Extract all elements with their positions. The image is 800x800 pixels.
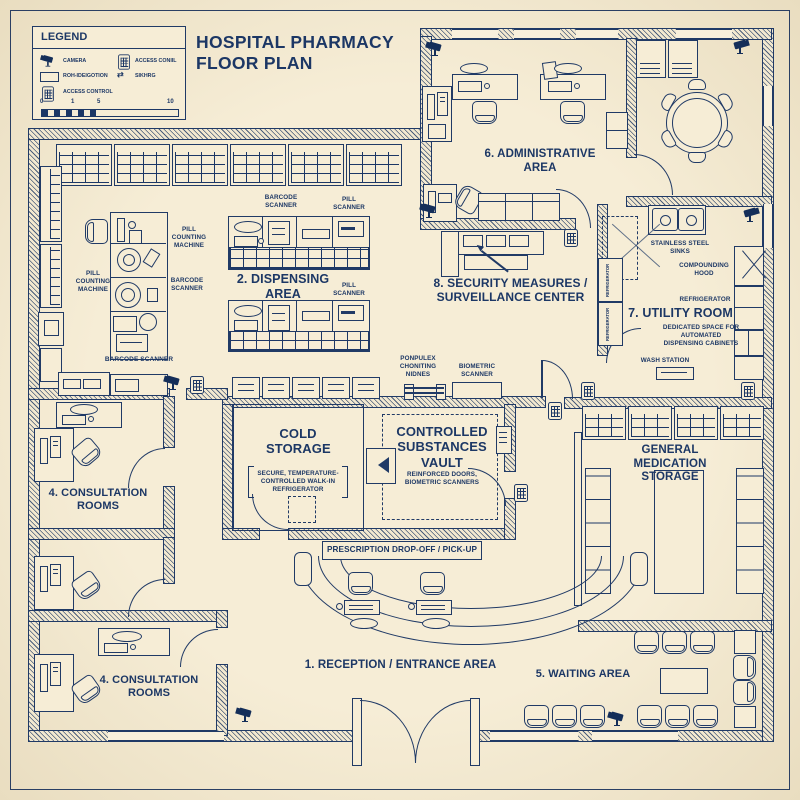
monitor [554, 63, 582, 74]
vault-door-icon [378, 457, 389, 473]
keyboard [62, 415, 86, 425]
chair [693, 705, 718, 728]
side-table [734, 630, 756, 654]
label-wash-station: WASH STATION [636, 357, 694, 365]
scale-device [234, 221, 262, 233]
refrigerator-cabinet: REFRIGERATOR [598, 258, 623, 302]
keyboard [234, 236, 258, 247]
shelf-unit [288, 144, 344, 186]
label-compounding-hood: COMPOUNDING HOOD [674, 262, 734, 278]
label-sinks: STAINLESS STEEL SINKS [644, 240, 716, 256]
window [763, 204, 773, 248]
prescription-counter-box: PRESCRIPTION DROP-OFF / PICK-UP [322, 541, 482, 560]
label-refrigerator: REFRIGERATOR [674, 296, 736, 304]
scanner-bin [262, 377, 290, 399]
scale-tick: 0 [40, 99, 43, 105]
computer-tower [437, 92, 448, 116]
cabinet [668, 40, 698, 78]
counting-machine-bar [404, 387, 444, 389]
label-vault-desc: REINFORCED DOORS, BIOMETRIC SCANNERS [394, 471, 490, 487]
window [592, 731, 678, 741]
window [452, 29, 498, 39]
desk-wing [294, 552, 312, 586]
scale-bar [41, 109, 179, 117]
register [344, 600, 380, 615]
shelf-unit [230, 144, 286, 186]
keyboard [458, 81, 482, 92]
device [422, 618, 450, 629]
wall [163, 396, 175, 448]
camera-icon [608, 712, 625, 726]
scale-tick: 10 [167, 99, 174, 105]
device [116, 334, 148, 352]
monitor [427, 94, 435, 120]
mouse [574, 83, 580, 89]
mouse [128, 221, 136, 229]
scanner-bin [322, 377, 350, 399]
chair [662, 631, 687, 654]
monitor [40, 664, 48, 692]
legend-title: LEGEND [41, 31, 101, 44]
scanner-bin [232, 377, 260, 399]
keyboard [548, 81, 572, 92]
camera-icon [236, 708, 253, 722]
monitor [117, 218, 125, 242]
monitor [460, 63, 488, 74]
wall-cabinet [38, 312, 64, 346]
keypad-icon [514, 484, 528, 502]
barcode-scanner-device [268, 305, 290, 331]
title-line2: FLOOR PLAN [196, 53, 426, 74]
shelving-arrows-icon: ⇄ [117, 70, 124, 79]
camera-icon [742, 208, 759, 222]
window [576, 29, 618, 39]
storage-rack [736, 468, 764, 594]
pill-counting-machine [121, 288, 135, 302]
keypad-icon [741, 382, 755, 400]
label-reception: 1. RECEPTION / ENTRANCE AREA [298, 659, 503, 673]
wall-cabinet [40, 244, 62, 308]
wall [28, 128, 434, 140]
keypad-icon [548, 402, 562, 420]
chair [472, 101, 497, 124]
label-barcode-scanner: BARCODE SCANNER [163, 277, 211, 293]
door-leaf [541, 360, 543, 398]
camera-icon [164, 376, 181, 390]
mouse [484, 83, 490, 89]
chair [420, 572, 445, 595]
label-cold-storage: COLD STORAGE [266, 426, 330, 457]
computer-tower [50, 436, 61, 458]
tray [302, 229, 330, 239]
coffee-table [660, 668, 708, 694]
shelf-unit [628, 406, 672, 440]
security-shelf [478, 193, 560, 221]
barcode-counter [110, 374, 168, 396]
biometric-panel [496, 426, 512, 454]
label-pill-counting: PILL COUNTING MACHINE [166, 226, 212, 251]
label-pill-counting: PILL COUNTING MACHINE [70, 270, 116, 295]
dot [408, 603, 415, 610]
computer-tower [50, 564, 61, 586]
chair [524, 705, 549, 728]
camera-icon [732, 40, 749, 54]
label-administrative: 6. ADMINISTRATIVE AREA [482, 148, 598, 175]
keyboard [104, 643, 128, 653]
desk-wing [630, 552, 648, 586]
register [416, 600, 452, 615]
divider [110, 311, 166, 312]
legend-item-label: ACCESS CONTROL [63, 89, 113, 95]
camera-icon [420, 204, 437, 218]
device [147, 288, 158, 302]
shelf-unit [346, 144, 402, 186]
shelf-unit [172, 144, 228, 186]
cabinet [606, 112, 628, 131]
legend: LEGEND CAMERA ACCESS CONIIL ROH-IDEIGOTI… [32, 26, 186, 120]
monitor [40, 438, 48, 464]
monitor [486, 235, 506, 247]
chair [634, 631, 659, 654]
pill-counting-machine [123, 254, 135, 266]
wall [762, 28, 774, 742]
label-consultation-lower: 4. CONSULTATION ROOMS [94, 674, 204, 700]
chair [580, 705, 605, 728]
label-dedicated-space: DEDICATED SPACE FOR AUTOMATED DISPENSING… [660, 324, 742, 349]
round-table [672, 98, 722, 148]
mouse [130, 644, 136, 650]
tray [302, 311, 330, 321]
device [139, 313, 157, 331]
barcode-counter [58, 372, 110, 396]
device [113, 316, 137, 332]
storage-rack [654, 470, 704, 594]
chair [690, 631, 715, 654]
keypad-icon [190, 376, 204, 394]
chair [637, 705, 662, 728]
scale-device [234, 305, 262, 317]
label-pill-scanner: PILL SCANNER [326, 196, 372, 212]
chair [688, 79, 706, 90]
window-icon [40, 72, 59, 82]
chair [733, 680, 756, 705]
camera-icon [41, 55, 55, 66]
cabinet [636, 40, 666, 78]
biometric-scanner-counter [452, 382, 502, 399]
wall [163, 537, 175, 584]
shelf-unit [56, 144, 112, 186]
window [490, 731, 578, 741]
divider [33, 48, 185, 49]
device [129, 230, 142, 244]
scanner-bin [352, 377, 380, 399]
label-waiting: 5. WAITING AREA [524, 668, 642, 681]
chair [348, 572, 373, 595]
chair [85, 219, 108, 244]
shelf-unit [114, 144, 170, 186]
wall [216, 664, 228, 736]
monitor [509, 235, 529, 247]
divider [110, 277, 166, 278]
label-pill-scanner: PILL SCANNER [326, 282, 372, 298]
chair [665, 705, 690, 728]
sink [678, 208, 704, 231]
keypad-icon [581, 382, 595, 400]
chair [688, 152, 706, 163]
window [108, 731, 224, 741]
refrigerator-cabinet: REFRIGERATOR [598, 302, 623, 346]
monitor [40, 566, 48, 592]
label-general-storage: GENERAL MEDICATION STORAGE [605, 444, 735, 485]
entrance-door [470, 698, 480, 766]
page-title: HOSPITAL PHARMACY FLOOR PLAN [196, 32, 426, 74]
dot [336, 603, 343, 610]
label-vault: CONTROLLED SUBSTANCES VAULT [392, 424, 492, 470]
counting-machine-bar [404, 392, 444, 394]
wall [216, 610, 228, 628]
mouse [88, 416, 94, 422]
wall [28, 528, 175, 540]
shelf-unit [720, 406, 764, 440]
wall-cabinet [40, 166, 62, 242]
barcode-scanner-device [268, 221, 290, 245]
chair [560, 101, 585, 124]
security-cabinet [441, 231, 459, 277]
label-consultation-upper: 4. CONSULTATION ROOMS [46, 487, 150, 513]
monitor [70, 404, 98, 415]
label-barcode-scanner: BARCODE SCANNER [100, 356, 178, 364]
dashed-zone [288, 496, 316, 523]
wash-station [656, 367, 694, 380]
legend-item-label: SIKHRG [135, 73, 156, 79]
scanner-bin [292, 377, 320, 399]
mouse [258, 238, 264, 244]
bin-row [229, 331, 369, 351]
label-security: 8. SECURITY MEASURES / SURVEILLANCE CENT… [428, 276, 593, 304]
monitor [112, 631, 142, 642]
keyboard [234, 320, 258, 331]
pill-scanner-device [338, 305, 364, 321]
label-counting-machines: PONPULEX CHONITING NIDNES [392, 355, 444, 380]
bin-row [229, 247, 369, 269]
computer-tower [50, 662, 61, 686]
shelf-unit [674, 406, 718, 440]
device [350, 618, 378, 629]
chair [552, 705, 577, 728]
cabinet [734, 356, 764, 380]
device [428, 124, 446, 139]
legend-item-label: ROH-IDEIGOTION [63, 73, 108, 79]
camera-icon [426, 42, 443, 56]
pill-scanner-device [338, 221, 364, 237]
label-barcode-scanner: BARCODE SCANNER [252, 194, 310, 210]
window [676, 29, 732, 39]
label-utility: 7. UTILITY ROOM [628, 306, 733, 321]
window [763, 86, 773, 126]
side-table [734, 706, 756, 728]
label-biometric-scanner: BIOMETRIC SCANNER [450, 363, 504, 379]
scale-tick: 5 [97, 99, 100, 105]
legend-item-label: CAMERA [63, 58, 86, 64]
scale-tick: 1 [71, 99, 74, 105]
title-line1: HOSPITAL PHARMACY [196, 32, 426, 53]
cabinet [606, 130, 628, 149]
keypad-icon [42, 86, 54, 101]
compounding-hood-cabinet [734, 246, 764, 286]
chair [733, 655, 756, 680]
label-cold-storage-desc: SECURE, TEMPERATURE-CONTROLLED WALK-IN R… [246, 470, 350, 495]
keypad-icon [564, 229, 578, 247]
window [514, 29, 560, 39]
legend-item-label: ACCESS CONIIL [135, 58, 177, 64]
shelf-unit [582, 406, 626, 440]
prescription-counter-label: PRESCRIPTION DROP-OFF / PICK-UP [323, 542, 481, 557]
access-panel-icon [118, 54, 130, 69]
